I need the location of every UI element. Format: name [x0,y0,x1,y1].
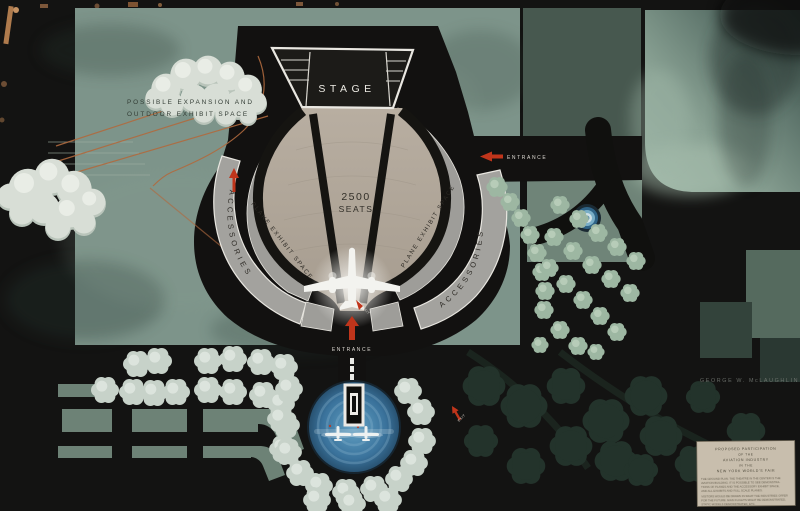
card-title-line3: AVIATION INDUSTRY [723,458,769,462]
expansion-note-line1: POSSIBLE EXPANSION AND [127,99,254,106]
dark-patch-right [700,302,752,358]
artwork-board: 2500 SEATS STAGE ACCESSORIES ACCESSORIES [0,0,800,511]
site-plan-artwork: 2500 SEATS STAGE ACCESSORIES ACCESSORIES [0,0,800,511]
tree [267,406,295,432]
dark-patch-right-lower [760,338,800,382]
card-body-line7: STATIC MODELS DEMONSTRATED, ETC. [701,502,755,507]
tree [394,378,422,404]
shaded-green-zone-top [523,8,641,138]
gate-structure [345,385,363,425]
seats-word: SEATS [339,204,374,214]
expansion-note-line2: OUTDOOR EXHIBIT SPACE [127,111,249,118]
artist-signature: GEORGE W. McLAUGHLIN [700,378,799,384]
green-patch-right-edge [746,250,800,338]
stage-label: STAGE [318,83,375,95]
tree [400,450,428,476]
card-title-line1: PROPOSED PARTICIPATION [715,447,776,452]
walkway-dashes [350,358,354,380]
title-card: PROPOSED PARTICIPATION OF THE AVIATION I… [697,440,796,506]
card-title-line5: NEW YORK WORLD'S FAIR [717,469,776,474]
tree [275,376,303,402]
entrance-label-bottom: ENTRANCE [332,347,372,353]
card-title-line4: IN THE [739,463,753,467]
card-title-line2: OF THE [738,452,753,456]
card-body-line4: AND ALL EXHIBITS AND FULL SCALE PLANES. [701,488,763,493]
misty-region [630,0,800,196]
tree [408,428,436,454]
seats-count: 2500 [341,191,370,203]
entrance-label-right: ENTRANCE [507,155,547,161]
